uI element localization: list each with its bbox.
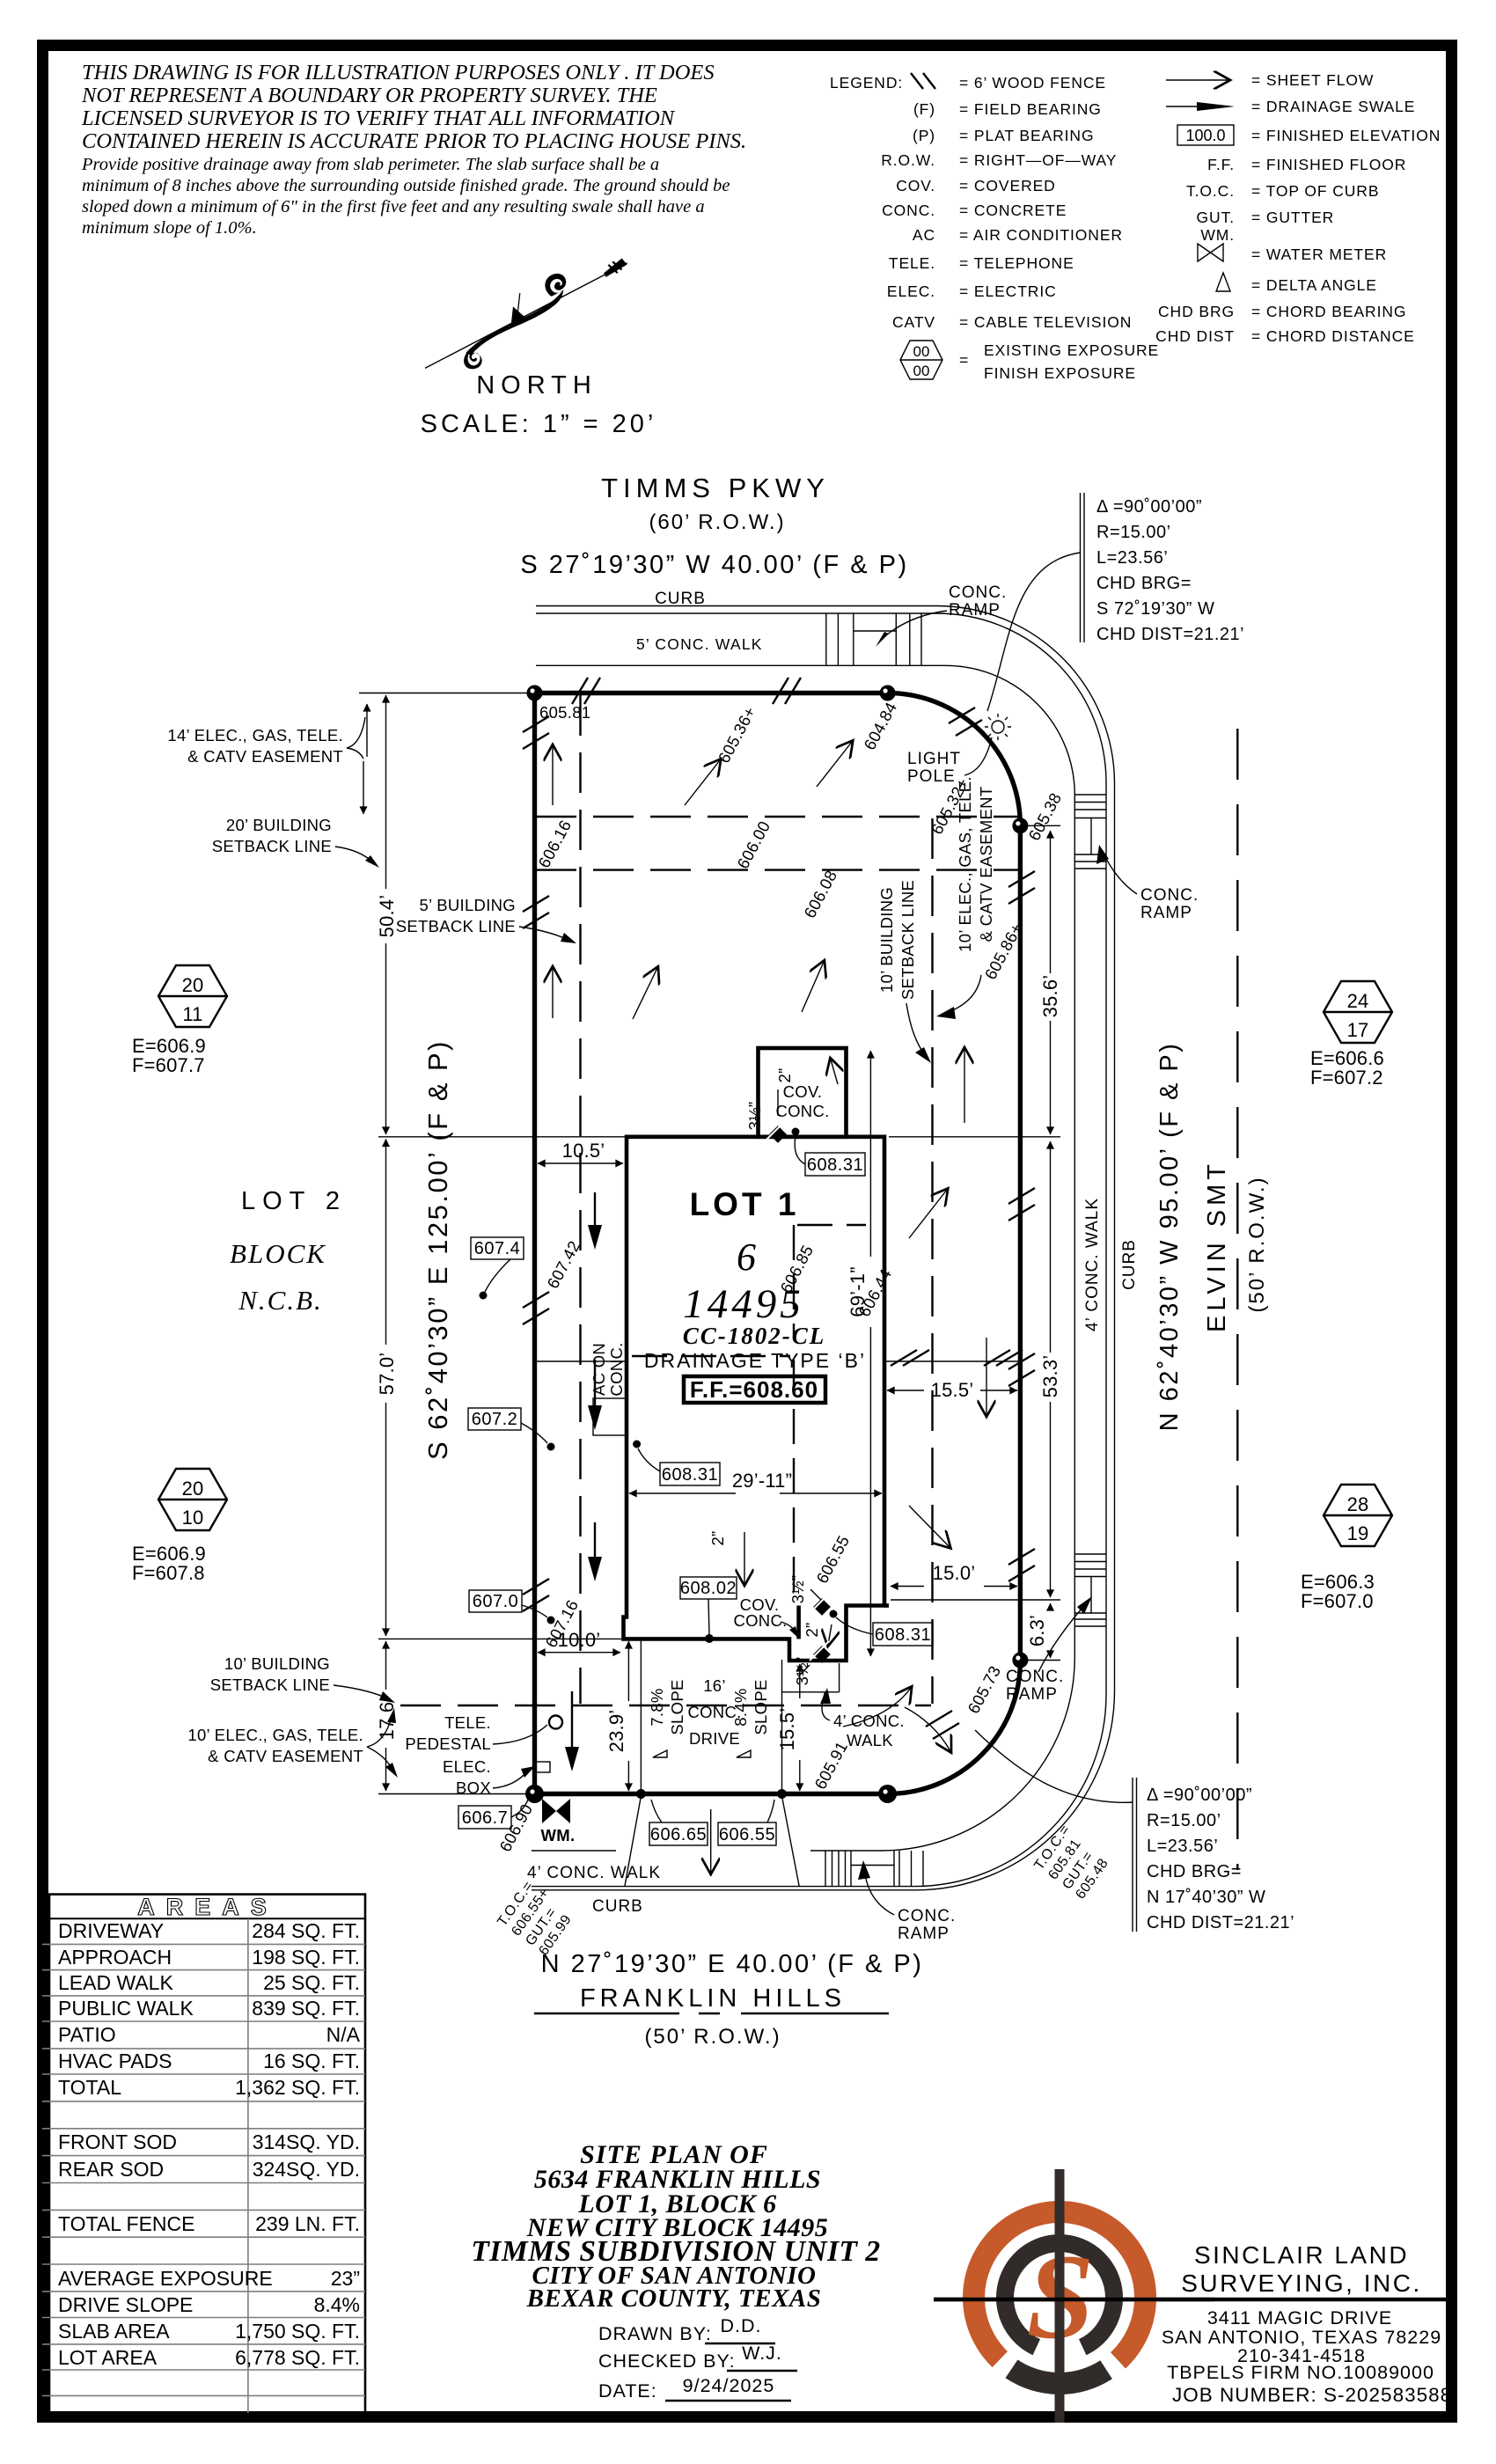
svg-text:PEDESTAL: PEDESTAL: [405, 1734, 491, 1753]
svg-text:35.6’: 35.6’: [1039, 975, 1061, 1018]
svg-text:Δ =90˚00’00”: Δ =90˚00’00”: [1096, 497, 1202, 517]
svg-text:CONC.: CONC.: [898, 1907, 956, 1925]
svg-text:CHD BRG=: CHD BRG=: [1147, 1862, 1242, 1881]
svg-text:606.7: 606.7: [462, 1808, 509, 1828]
svg-text:CHD BRG=: CHD BRG=: [1096, 574, 1192, 593]
svg-text:607.4: 607.4: [474, 1239, 521, 1258]
svg-text:CHD DIST=21.21’: CHD DIST=21.21’: [1147, 1913, 1294, 1932]
svg-text:606.85: 606.85: [776, 1242, 817, 1295]
svg-text:24: 24: [1347, 990, 1369, 1012]
svg-text:AC ON: AC ON: [590, 1343, 608, 1396]
svg-text:5’ CONC. WALK: 5’ CONC. WALK: [636, 635, 763, 653]
svg-text:LOT AREA: LOT AREA: [58, 2346, 158, 2369]
svg-text:11: 11: [182, 1003, 202, 1025]
svg-text:10’ BUILDING: 10’ BUILDING: [877, 887, 896, 993]
svg-text:DRAINAGE TYPE ‘B’: DRAINAGE TYPE ‘B’: [644, 1349, 866, 1372]
svg-text:D.D.: D.D.: [721, 2315, 762, 2336]
svg-text:CONC.: CONC.: [1006, 1668, 1064, 1686]
svg-text:SURVEYING, INC.: SURVEYING, INC.: [1181, 2270, 1421, 2297]
svg-text:(50’ R.O.W.): (50’ R.O.W.): [644, 2025, 781, 2049]
svg-text:00: 00: [913, 343, 930, 360]
svg-text:839 SQ. FT.: 839 SQ. FT.: [252, 1997, 360, 2020]
svg-text:29’-11”: 29’-11”: [732, 1470, 792, 1492]
svg-text:(60’ R.O.W.): (60’ R.O.W.): [649, 510, 785, 534]
svg-text:606.65: 606.65: [650, 1825, 707, 1844]
svg-text:19: 19: [1347, 1522, 1369, 1544]
svg-text:BEXAR COUNTY, TEXAS: BEXAR COUNTY, TEXAS: [526, 2284, 822, 2313]
svg-text:2”: 2”: [803, 1622, 821, 1637]
svg-text:CONC.: CONC.: [882, 202, 935, 219]
svg-text:= CHORD BEARING: = CHORD BEARING: [1251, 303, 1406, 320]
svg-text:606.00: 606.00: [733, 818, 774, 871]
svg-text:L=23.56’: L=23.56’: [1096, 548, 1168, 568]
svg-text:SLOPE: SLOPE: [668, 1679, 686, 1734]
svg-text:TELE.: TELE.: [444, 1713, 491, 1732]
svg-text:10’ ELEC., GAS, TELE.: 10’ ELEC., GAS, TELE.: [187, 1726, 363, 1744]
svg-text:= PLAT BEARING: = PLAT BEARING: [959, 127, 1094, 144]
svg-text:CONC.: CONC.: [949, 583, 1007, 602]
svg-text:6,778 SQ. FT.: 6,778 SQ. FT.: [235, 2346, 360, 2369]
svg-text:605.81: 605.81: [539, 703, 590, 722]
svg-text:3½”: 3½”: [793, 1657, 811, 1686]
svg-text:8.4%: 8.4%: [314, 2293, 360, 2316]
svg-text:6: 6: [737, 1236, 756, 1279]
svg-text:CONC.: CONC.: [733, 1611, 787, 1630]
svg-text:= DELTA ANGLE: = DELTA ANGLE: [1251, 276, 1377, 294]
svg-text:LICENSED SURVEYOR IS TO VERIFY: LICENSED SURVEYOR IS TO VERIFY THAT ALL …: [81, 106, 676, 130]
svg-text:RAMP: RAMP: [1140, 904, 1192, 922]
svg-text:= WATER METER: = WATER METER: [1251, 246, 1387, 263]
svg-text:= TELEPHONE: = TELEPHONE: [959, 254, 1074, 272]
svg-text:= ELECTRIC: = ELECTRIC: [959, 282, 1057, 300]
svg-text:LIGHT: LIGHT: [907, 750, 961, 768]
svg-text:PATIO: PATIO: [58, 2023, 116, 2046]
svg-text:(P): (P): [913, 127, 935, 144]
svg-text:T.O.C.: T.O.C.: [1186, 182, 1235, 200]
svg-text:CATV: CATV: [892, 313, 935, 331]
svg-text:15.5’: 15.5’: [776, 1708, 798, 1751]
svg-text:SETBACK LINE: SETBACK LINE: [396, 917, 516, 935]
svg-text:TOTAL: TOTAL: [58, 2076, 121, 2099]
svg-text:50.4’: 50.4’: [376, 895, 398, 938]
svg-text:= FIELD BEARING: = FIELD BEARING: [959, 100, 1102, 118]
svg-text:(F): (F): [913, 100, 935, 118]
svg-text:S 72˚19’30” W: S 72˚19’30” W: [1096, 599, 1214, 619]
svg-text:WM.: WM.: [1200, 226, 1235, 244]
svg-text:DRIVE: DRIVE: [689, 1729, 740, 1748]
svg-text:AVERAGE EXPOSURE: AVERAGE EXPOSURE: [58, 2267, 273, 2290]
svg-text:4’ CONC. WALK: 4’ CONC. WALK: [1083, 1198, 1102, 1331]
svg-text:F=607.7: F=607.7: [132, 1054, 205, 1076]
svg-text:TELE.: TELE.: [889, 254, 935, 272]
svg-text:SETBACK LINE: SETBACK LINE: [210, 1676, 330, 1694]
svg-text:= FINISHED ELEVATION: = FINISHED ELEVATION: [1251, 127, 1441, 144]
svg-text:284 SQ. FT.: 284 SQ. FT.: [252, 1919, 360, 1942]
svg-text:AC: AC: [913, 226, 935, 244]
svg-text:3411 MAGIC DRIVE: 3411 MAGIC DRIVE: [1207, 2307, 1392, 2328]
svg-text:CHECKED BY:: CHECKED BY:: [598, 2350, 736, 2372]
svg-text:REAR SOD: REAR SOD: [58, 2158, 164, 2181]
svg-text:CONC.: CONC.: [1140, 886, 1199, 905]
svg-text:CONTAINED HEREIN IS ACCURATE P: CONTAINED HEREIN IS ACCURATE PRIOR TO PL…: [82, 129, 746, 153]
svg-text:20: 20: [182, 1478, 204, 1500]
svg-text:F=607.0: F=607.0: [1301, 1590, 1374, 1612]
svg-text:1,362 SQ. FT.: 1,362 SQ. FT.: [235, 2076, 360, 2099]
svg-text:& CATV EASEMENT: & CATV EASEMENT: [208, 1747, 363, 1765]
svg-text:605.38: 605.38: [1024, 789, 1065, 843]
svg-text:F.F.: F.F.: [1207, 156, 1235, 173]
svg-text:4’ CONC.: 4’ CONC.: [833, 1712, 905, 1730]
svg-text:THIS DRAWING IS FOR ILLUSTRATI: THIS DRAWING IS FOR ILLUSTRATION PURPOSE…: [82, 61, 715, 84]
svg-text:NOT REPRESENT A BOUNDARY OR PR: NOT REPRESENT A BOUNDARY OR PROPERTY SUR…: [81, 84, 657, 107]
svg-text:608.31: 608.31: [662, 1465, 718, 1485]
svg-text:606.55: 606.55: [719, 1825, 775, 1844]
svg-text:& CATV EASEMENT: & CATV EASEMENT: [187, 747, 343, 766]
svg-text:LEGEND:: LEGEND:: [830, 74, 903, 92]
svg-text:CHD DIST: CHD DIST: [1155, 327, 1235, 345]
svg-text:15.5’: 15.5’: [931, 1379, 974, 1401]
svg-text:606.55: 606.55: [812, 1532, 853, 1586]
svg-text:RAMP: RAMP: [898, 1925, 950, 1943]
svg-text:2”: 2”: [708, 1530, 727, 1545]
svg-text:DATE:: DATE:: [598, 2380, 657, 2402]
svg-text:TOTAL FENCE: TOTAL FENCE: [58, 2212, 195, 2235]
svg-text:16 SQ. FT.: 16 SQ. FT.: [263, 2050, 360, 2072]
svg-text:604.84: 604.84: [860, 699, 900, 752]
svg-text:POLE: POLE: [907, 767, 956, 786]
svg-text:BOX: BOX: [456, 1778, 491, 1797]
svg-text:COV.: COV.: [896, 177, 935, 194]
svg-text:20: 20: [182, 974, 204, 996]
svg-text:= DRAINAGE SWALE: = DRAINAGE SWALE: [1251, 98, 1415, 115]
svg-text:607.42: 607.42: [543, 1237, 583, 1291]
svg-text:4’ CONC. WALK: 4’ CONC. WALK: [527, 1864, 661, 1882]
svg-text:= RIGHT—OF—WAY: = RIGHT—OF—WAY: [959, 151, 1117, 169]
svg-text:314SQ. YD.: 314SQ. YD.: [253, 2130, 360, 2153]
svg-text:605.73: 605.73: [964, 1662, 1004, 1716]
svg-text:PUBLIC WALK: PUBLIC WALK: [58, 1997, 194, 2020]
svg-text:605.91: 605.91: [810, 1738, 851, 1792]
svg-text:FINISH EXPOSURE: FINISH EXPOSURE: [984, 364, 1136, 382]
svg-text:CURB: CURB: [1120, 1239, 1139, 1290]
svg-text:= SHEET FLOW: = SHEET FLOW: [1251, 71, 1374, 89]
svg-text:605.36+: 605.36+: [715, 703, 759, 766]
svg-text:GUT.: GUT.: [1197, 209, 1235, 226]
svg-text:28: 28: [1347, 1493, 1369, 1515]
svg-text:00: 00: [913, 363, 930, 379]
svg-text:WALK: WALK: [847, 1731, 893, 1749]
svg-text:COV.: COV.: [783, 1082, 823, 1101]
svg-text:F=607.8: F=607.8: [132, 1562, 205, 1584]
svg-text:SLOPE: SLOPE: [752, 1679, 770, 1734]
svg-text:608.31: 608.31: [807, 1155, 863, 1175]
svg-text:R=15.00’: R=15.00’: [1147, 1811, 1221, 1830]
svg-text:R=15.00’: R=15.00’: [1096, 523, 1171, 542]
svg-text:TBPELS FIRM NO.10089000: TBPELS FIRM NO.10089000: [1167, 2362, 1434, 2383]
svg-text:= FINISHED FLOOR: = FINISHED FLOOR: [1251, 156, 1406, 173]
svg-text:(50’ R.O.W.): (50’ R.O.W.): [1245, 1176, 1269, 1312]
svg-text:CONC.: CONC.: [607, 1342, 626, 1396]
svg-text:ELEC.: ELEC.: [887, 282, 935, 300]
svg-text:FRANKLIN HILLS: FRANKLIN HILLS: [580, 1984, 846, 2013]
svg-text:25 SQ. FT.: 25 SQ. FT.: [263, 1971, 360, 1994]
svg-text:=: =: [959, 351, 969, 369]
svg-text:N 62˚40’30” W 95.00’ (F & P): N 62˚40’30” W 95.00’ (F & P): [1155, 1042, 1184, 1432]
svg-text:JOB NUMBER: S-202583588: JOB NUMBER: S-202583588: [1172, 2384, 1452, 2406]
svg-text:CONC.: CONC.: [775, 1102, 829, 1120]
svg-text:sloped down a minimum of 6" in: sloped down a minimum of 6" in the first…: [82, 197, 705, 216]
svg-text:& CATV EASEMENT: & CATV EASEMENT: [977, 787, 995, 942]
svg-text:N.C.B.: N.C.B.: [238, 1285, 323, 1316]
svg-text:SINCLAIR LAND: SINCLAIR LAND: [1194, 2241, 1409, 2269]
svg-text:LEAD WALK: LEAD WALK: [58, 1971, 173, 1994]
svg-text:LOT 2: LOT 2: [241, 1187, 347, 1215]
svg-text:L=23.56’: L=23.56’: [1147, 1837, 1218, 1856]
svg-text:SLAB AREA: SLAB AREA: [58, 2320, 170, 2343]
svg-text:10’ BUILDING: 10’ BUILDING: [224, 1654, 330, 1673]
svg-text:NORTH: NORTH: [476, 371, 598, 400]
svg-text:607.0: 607.0: [473, 1592, 519, 1611]
svg-text:15.0’: 15.0’: [933, 1562, 976, 1584]
svg-text:N 27˚19’30” E 40.00’ (F & P): N 27˚19’30” E 40.00’ (F & P): [541, 1950, 924, 1978]
svg-text:ELEC.: ELEC.: [443, 1757, 491, 1776]
svg-text:10.5’: 10.5’: [562, 1140, 605, 1162]
svg-text:RAMP: RAMP: [949, 601, 1001, 620]
svg-text:minimum of 8 inches above the: minimum of 8 inches above the surroundin…: [82, 176, 730, 195]
svg-text:Δ =90˚00’00”: Δ =90˚00’00”: [1147, 1786, 1252, 1805]
svg-text:57.0’: 57.0’: [376, 1353, 398, 1396]
svg-text:R.O.W.: R.O.W.: [881, 151, 935, 169]
svg-text:Provide positive drainage away: Provide positive drainage away from slab…: [81, 155, 659, 174]
svg-text:= COVERED: = COVERED: [959, 177, 1056, 194]
svg-text:LOT 1: LOT 1: [690, 1186, 800, 1222]
svg-text:EXISTING EXPOSURE: EXISTING EXPOSURE: [984, 341, 1159, 359]
svg-text:606.08: 606.08: [800, 867, 840, 920]
svg-text:= 6’ WOOD FENCE: = 6’ WOOD FENCE: [959, 74, 1106, 92]
svg-text:BLOCK: BLOCK: [230, 1238, 326, 1269]
svg-text:DRIVEWAY: DRIVEWAY: [58, 1919, 164, 1942]
svg-text:9/24/2025: 9/24/2025: [683, 2375, 775, 2396]
svg-text:HVAC PADS: HVAC PADS: [58, 2050, 172, 2072]
svg-text:S 62˚40’30” E 125.00’ (F & P): S 62˚40’30” E 125.00’ (F & P): [422, 1039, 453, 1460]
svg-text:W.J.: W.J.: [742, 2343, 782, 2364]
svg-text:16’: 16’: [703, 1676, 726, 1695]
svg-text:CHD BRG: CHD BRG: [1158, 303, 1235, 320]
svg-text:608.02: 608.02: [680, 1579, 737, 1598]
svg-text:= TOP OF CURB: = TOP OF CURB: [1251, 182, 1379, 200]
svg-text:= CABLE TELEVISION: = CABLE TELEVISION: [959, 313, 1132, 331]
svg-text:SCALE: 1” = 20’: SCALE: 1” = 20’: [421, 410, 657, 438]
svg-text:3½”: 3½”: [745, 1102, 764, 1131]
svg-text:SETBACK LINE: SETBACK LINE: [212, 837, 332, 855]
svg-text:AREAS: AREAS: [137, 1894, 278, 1920]
svg-text:17: 17: [1347, 1019, 1369, 1041]
svg-text:F.F.=608.60: F.F.=608.60: [690, 1376, 818, 1403]
svg-text:14’ ELEC., GAS, TELE.: 14’ ELEC., GAS, TELE.: [167, 726, 343, 744]
svg-text:ELVIN SMT: ELVIN SMT: [1203, 1160, 1231, 1332]
svg-text:N/A: N/A: [326, 2023, 361, 2046]
svg-text:6.3’: 6.3’: [1026, 1615, 1048, 1646]
svg-text:20’ BUILDING: 20’ BUILDING: [226, 816, 332, 834]
svg-text:608.31: 608.31: [875, 1625, 931, 1645]
svg-text:606.16: 606.16: [534, 817, 575, 870]
svg-text:2”: 2”: [775, 1067, 794, 1082]
svg-text:CHD DIST=21.21’: CHD DIST=21.21’: [1096, 625, 1244, 644]
svg-text:CURB: CURB: [592, 1897, 643, 1916]
svg-text:WM.: WM.: [541, 1826, 576, 1844]
svg-text:DRIVE SLOPE: DRIVE SLOPE: [58, 2293, 193, 2316]
svg-text:CC-1802-CL: CC-1802-CL: [683, 1323, 826, 1349]
svg-text:= CONCRETE: = CONCRETE: [959, 202, 1067, 219]
svg-text:5’ BUILDING: 5’ BUILDING: [419, 896, 516, 914]
svg-text:53.3’: 53.3’: [1039, 1355, 1061, 1398]
svg-text:= CHORD DISTANCE: = CHORD DISTANCE: [1251, 327, 1415, 345]
svg-text:3½”: 3½”: [788, 1575, 807, 1604]
svg-text:1,750 SQ. FT.: 1,750 SQ. FT.: [235, 2320, 360, 2343]
svg-text:APPROACH: APPROACH: [58, 1946, 172, 1969]
svg-text:minimum slope of 1.0%.: minimum slope of 1.0%.: [82, 218, 257, 238]
svg-text:8.4%: 8.4%: [731, 1688, 750, 1726]
svg-text:F=607.2: F=607.2: [1310, 1067, 1383, 1089]
svg-text:324SQ. YD.: 324SQ. YD.: [253, 2158, 360, 2181]
svg-text:S 27˚19’30” W 40.00’ (F & P): S 27˚19’30” W 40.00’ (F & P): [520, 551, 908, 579]
svg-text:SETBACK LINE: SETBACK LINE: [898, 880, 917, 1000]
svg-text:TIMMS PKWY: TIMMS PKWY: [601, 473, 830, 503]
svg-text:239 LN. FT.: 239 LN. FT.: [255, 2212, 360, 2235]
svg-text:23”: 23”: [331, 2267, 360, 2290]
svg-text:= AIR CONDITIONER: = AIR CONDITIONER: [959, 226, 1123, 244]
svg-text:7.8%: 7.8%: [648, 1688, 666, 1726]
svg-text:FRONT SOD: FRONT SOD: [58, 2130, 177, 2153]
svg-text:N 17˚40’30” W: N 17˚40’30” W: [1147, 1888, 1265, 1907]
svg-text:607.2: 607.2: [472, 1410, 518, 1429]
svg-text:23.9’: 23.9’: [605, 1710, 627, 1753]
svg-text:198 SQ. FT.: 198 SQ. FT.: [252, 1946, 360, 1969]
svg-text:DRAWN BY:: DRAWN BY:: [598, 2323, 712, 2344]
svg-text:10: 10: [182, 1507, 204, 1529]
svg-text:100.0: 100.0: [1185, 127, 1225, 144]
svg-text:= GUTTER: = GUTTER: [1251, 209, 1334, 226]
